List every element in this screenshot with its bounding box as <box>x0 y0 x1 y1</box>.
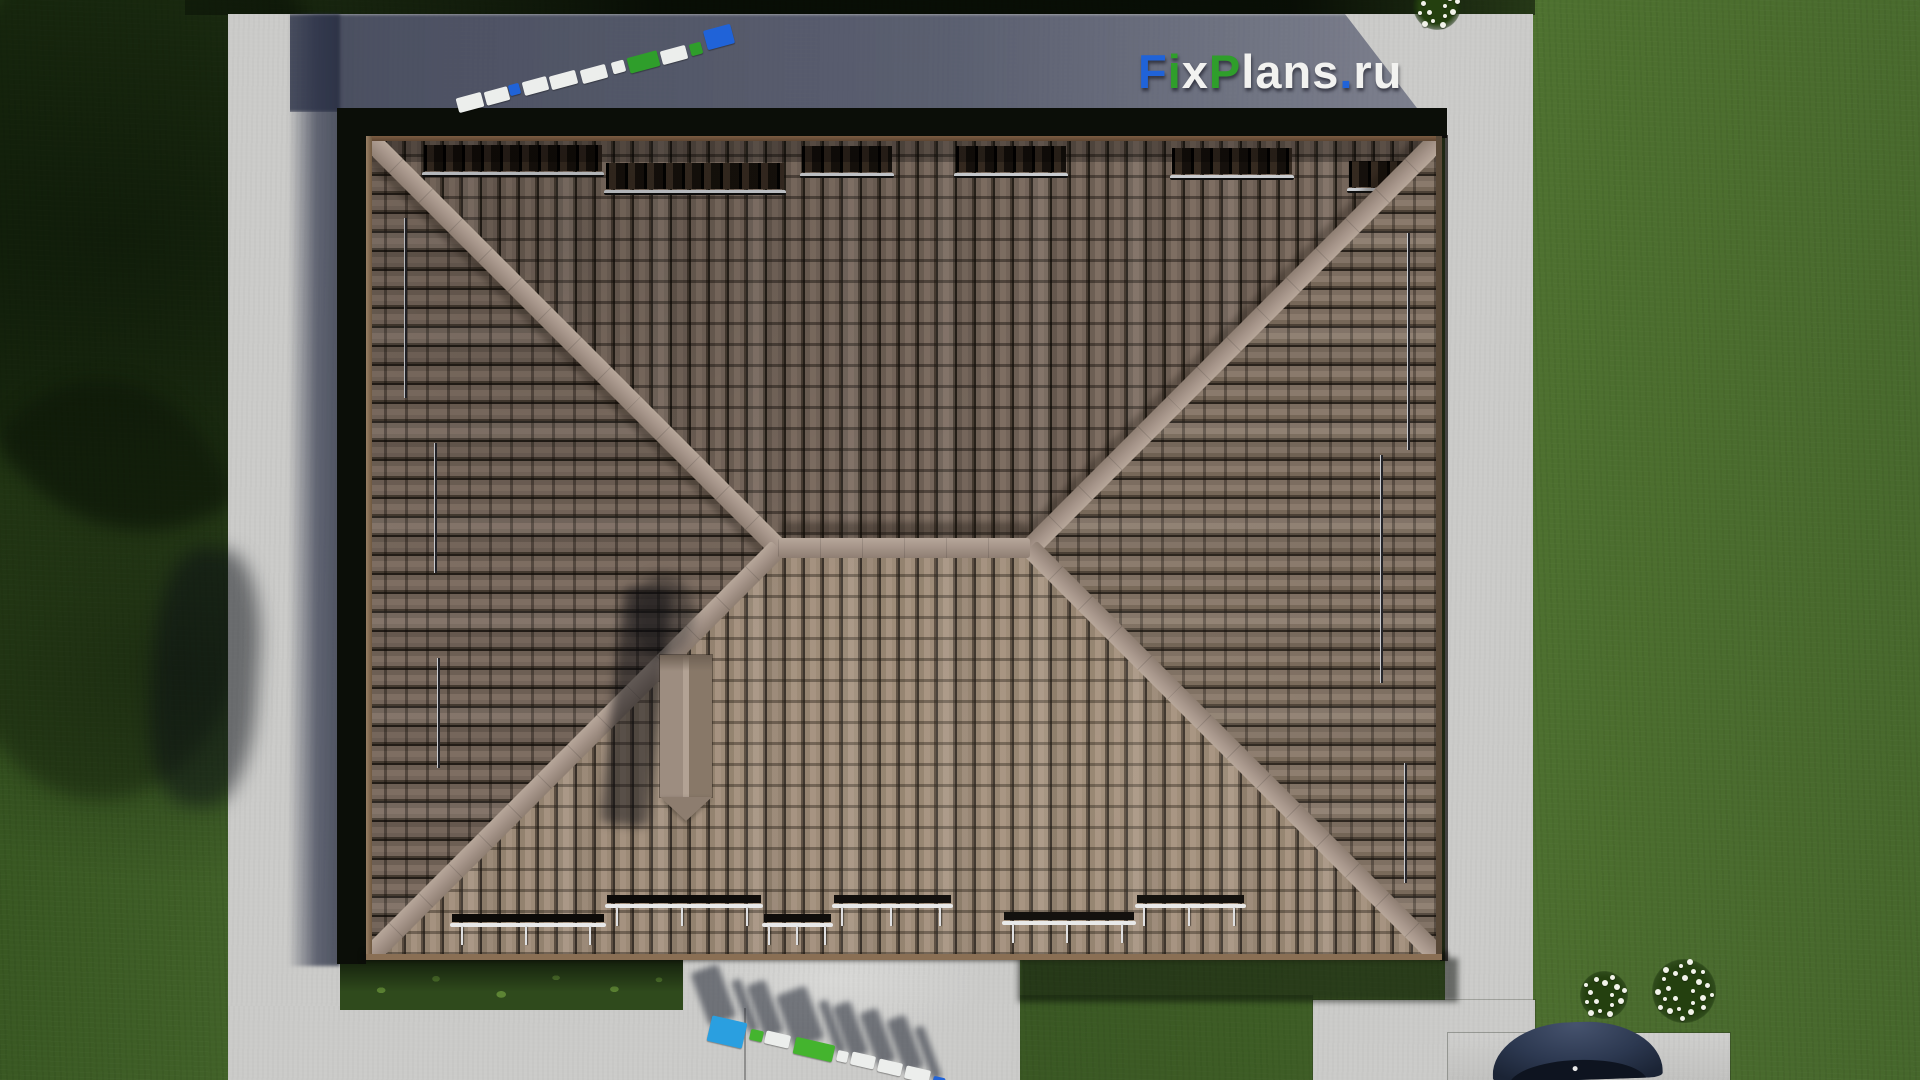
site-logo-letter: . <box>1339 45 1353 98</box>
bush-foliage <box>1413 0 1461 30</box>
chimney-shadow-upper <box>632 574 694 658</box>
flower <box>1680 1016 1685 1021</box>
roof-vent-strip <box>1172 148 1292 174</box>
flower <box>1418 11 1422 15</box>
snow-guard-bracket <box>525 927 527 945</box>
snow-guard <box>450 923 606 927</box>
snow-guard <box>800 173 894 178</box>
flower <box>1662 977 1666 981</box>
flower <box>1610 993 1614 997</box>
snow-guard-bracket <box>824 927 826 945</box>
flower <box>1691 1001 1695 1005</box>
roof-vent-strip <box>606 163 784 189</box>
site-logo-letter: i <box>1168 45 1182 98</box>
snow-guard <box>1407 233 1410 450</box>
flower <box>1696 979 1702 985</box>
fixplans-watermark: FixPlans.ru <box>1138 44 1402 99</box>
snow-guard-bracket <box>1012 925 1014 943</box>
snow-guard-shadow <box>764 914 831 922</box>
flower <box>1427 10 1432 15</box>
flower <box>1691 969 1696 974</box>
flower-bed <box>1413 0 1461 30</box>
snow-guard <box>404 218 407 398</box>
snow-guard-bracket <box>1121 925 1123 943</box>
site-logo-letter: l <box>1241 45 1255 98</box>
snow-guard-bracket <box>768 927 770 945</box>
roof-vent-strip <box>802 146 892 172</box>
flower <box>1688 1009 1694 1015</box>
snow-guard-bracket <box>890 908 892 926</box>
snow-guard-shadow <box>834 895 951 903</box>
snow-guard <box>437 658 440 768</box>
flower <box>1594 999 1599 1004</box>
flower <box>1421 1 1426 6</box>
site-logo-letter: P <box>1209 45 1241 98</box>
chimney <box>660 655 712 797</box>
flower <box>1440 22 1446 28</box>
flower <box>1584 983 1588 987</box>
flower <box>1667 1008 1673 1014</box>
snow-guard-shadow <box>1004 912 1134 920</box>
grass-south-tint <box>1020 995 1313 1080</box>
flower <box>1422 21 1428 27</box>
chimney-tip <box>660 797 712 821</box>
flower <box>1607 1011 1613 1017</box>
snow-guard <box>954 173 1068 178</box>
snow-guard <box>422 172 604 177</box>
garden-bed-south <box>340 958 683 1010</box>
fascia-bottom <box>366 954 1442 960</box>
flower <box>1450 9 1456 15</box>
snow-guard-bracket <box>589 927 591 945</box>
flower <box>1431 19 1435 23</box>
house-shadow-left-walkway <box>288 14 340 966</box>
walkway-right <box>1445 14 1533 1080</box>
site-logo-letter: x <box>1182 45 1209 98</box>
flower <box>1700 995 1706 1001</box>
site-logo-letter: F <box>1138 45 1168 98</box>
chimney-cap <box>660 655 712 671</box>
grass-strip-top <box>185 0 1535 15</box>
flower <box>1610 975 1615 980</box>
flower <box>1614 984 1620 990</box>
flower <box>1673 971 1678 976</box>
flower <box>1673 996 1678 1001</box>
hip-roof <box>366 136 1442 960</box>
flower-bed <box>1652 959 1716 1023</box>
ridge-shadow <box>782 522 1026 537</box>
snow-guard-shadow <box>1137 895 1244 903</box>
flower <box>1602 980 1608 986</box>
snow-guard <box>604 190 786 195</box>
site-logo-letter: a <box>1255 45 1282 98</box>
bush-foliage <box>1652 959 1716 1023</box>
flower <box>1598 1009 1602 1013</box>
site-logo-letter: n <box>1282 45 1312 98</box>
flower <box>1663 967 1669 973</box>
flower <box>1701 970 1705 974</box>
snow-guard <box>1170 175 1294 180</box>
snow-guard <box>1002 921 1136 925</box>
site-logo-letter: r <box>1353 45 1372 98</box>
eave-gap-top <box>337 108 1447 138</box>
snow-guard-shadow <box>452 914 604 922</box>
snow-guard <box>605 904 763 908</box>
eave-gap-left <box>337 108 366 964</box>
site-logo-letter: s <box>1312 45 1339 98</box>
car <box>1491 1019 1663 1080</box>
site-logo-letter: u <box>1373 45 1403 98</box>
flower <box>1666 986 1671 991</box>
flower <box>1443 4 1447 8</box>
flower <box>1594 977 1599 982</box>
snow-guard-bracket <box>1066 925 1068 943</box>
snow-guard-bracket <box>939 908 941 926</box>
flower-bed <box>1580 971 1628 1019</box>
snow-guard-bracket <box>1233 908 1235 926</box>
flower <box>1679 964 1683 968</box>
snow-guard-bracket <box>746 908 748 926</box>
flower <box>1655 989 1661 995</box>
flower <box>1682 975 1688 981</box>
snow-guard <box>1404 763 1407 883</box>
flower <box>1618 998 1624 1004</box>
snow-guard-bracket <box>616 908 618 926</box>
snow-guard-bracket <box>841 908 843 926</box>
roof-vent-strip <box>424 145 602 171</box>
flower <box>1658 1005 1663 1010</box>
snow-guard <box>832 904 953 908</box>
flower <box>1701 1005 1706 1010</box>
snow-guard-bracket <box>1188 908 1190 926</box>
flower <box>1687 959 1693 965</box>
flower <box>1710 993 1714 997</box>
roof-vent-strip <box>956 146 1066 172</box>
flower <box>1610 1003 1614 1007</box>
eave-shadow-southeast <box>1018 958 1458 1002</box>
snow-guard-bracket <box>681 908 683 926</box>
fascia-top <box>366 136 1442 141</box>
aerial-house-render: FixPlans.ru <box>0 0 1920 1080</box>
flower <box>1585 1000 1589 1004</box>
snow-guard <box>434 443 437 573</box>
snow-guard <box>1380 455 1383 683</box>
main-ridge <box>778 538 1030 558</box>
fascia-left <box>366 136 372 960</box>
flower <box>1622 988 1627 993</box>
flower <box>1588 990 1593 995</box>
flower <box>1588 1010 1594 1016</box>
snow-guard-bracket <box>1143 908 1145 926</box>
flower <box>1677 1007 1681 1011</box>
flower <box>1443 14 1447 18</box>
flower <box>1663 997 1667 1001</box>
snow-guard-bracket <box>461 927 463 945</box>
flower <box>1691 989 1695 993</box>
snow-guard-shadow <box>607 895 761 903</box>
flower <box>1705 983 1710 988</box>
snow-guard <box>1135 904 1246 908</box>
fascia-right <box>1436 136 1442 960</box>
snow-guard-bracket <box>796 927 798 945</box>
